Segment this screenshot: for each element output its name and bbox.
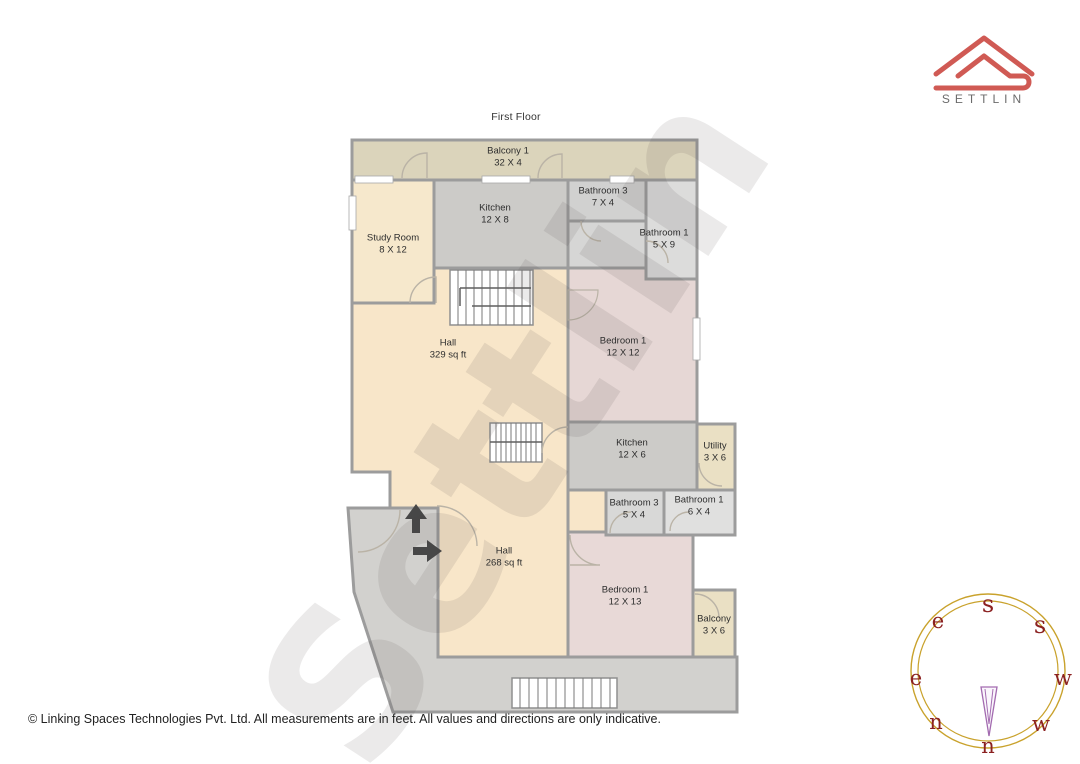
label-bathroom3-mid: Bathroom 35 X 4 xyxy=(609,498,658,523)
compass-letter-s-top: s xyxy=(982,590,994,618)
compass-letter-w-se: w xyxy=(1032,712,1050,736)
compass-letter-e-nw: e xyxy=(932,609,944,633)
settlin-logo-icon xyxy=(936,38,1032,88)
compass-letter-n-bottom: n xyxy=(981,734,995,758)
label-balcony2: Balcony3 X 6 xyxy=(697,614,731,639)
label-hall1: Hall329 sq ft xyxy=(430,338,466,363)
label-study: Study Room8 X 12 xyxy=(367,233,419,258)
label-bedroom1: Bedroom 112 X 12 xyxy=(600,336,646,361)
label-bathroom3-top: Bathroom 37 X 4 xyxy=(578,186,627,211)
label-bathroom1-top: Bathroom 15 X 9 xyxy=(639,228,688,253)
compass-needle xyxy=(981,687,997,736)
label-bathroom1-mid: Bathroom 16 X 4 xyxy=(674,495,723,520)
label-bedroom2: Bedroom 112 X 13 xyxy=(602,585,648,610)
label-hall2: Hall268 sq ft xyxy=(486,546,522,571)
label-balcony1: Balcony 132 X 4 xyxy=(487,146,529,171)
compass-letter-e-w: e xyxy=(910,666,922,690)
label-kitchen1: Kitchen12 X 8 xyxy=(479,203,511,228)
room-corridor-bottom xyxy=(568,490,606,532)
label-kitchen2: Kitchen12 X 6 xyxy=(616,438,648,463)
copyright-text: © Linking Spaces Technologies Pvt. Ltd. … xyxy=(28,712,661,726)
room-corridor-top xyxy=(568,221,646,268)
floorplan-page: Settlin First Floor SETTLIN © Linking Sp… xyxy=(0,0,1080,764)
compass-letter-s-ne: s xyxy=(1034,611,1046,639)
compass-letter-w-e: w xyxy=(1054,666,1072,690)
label-utility: Utility3 X 6 xyxy=(703,441,726,466)
floorplan-drawing xyxy=(0,0,1080,764)
compass-letter-n-sw: n xyxy=(929,710,943,734)
